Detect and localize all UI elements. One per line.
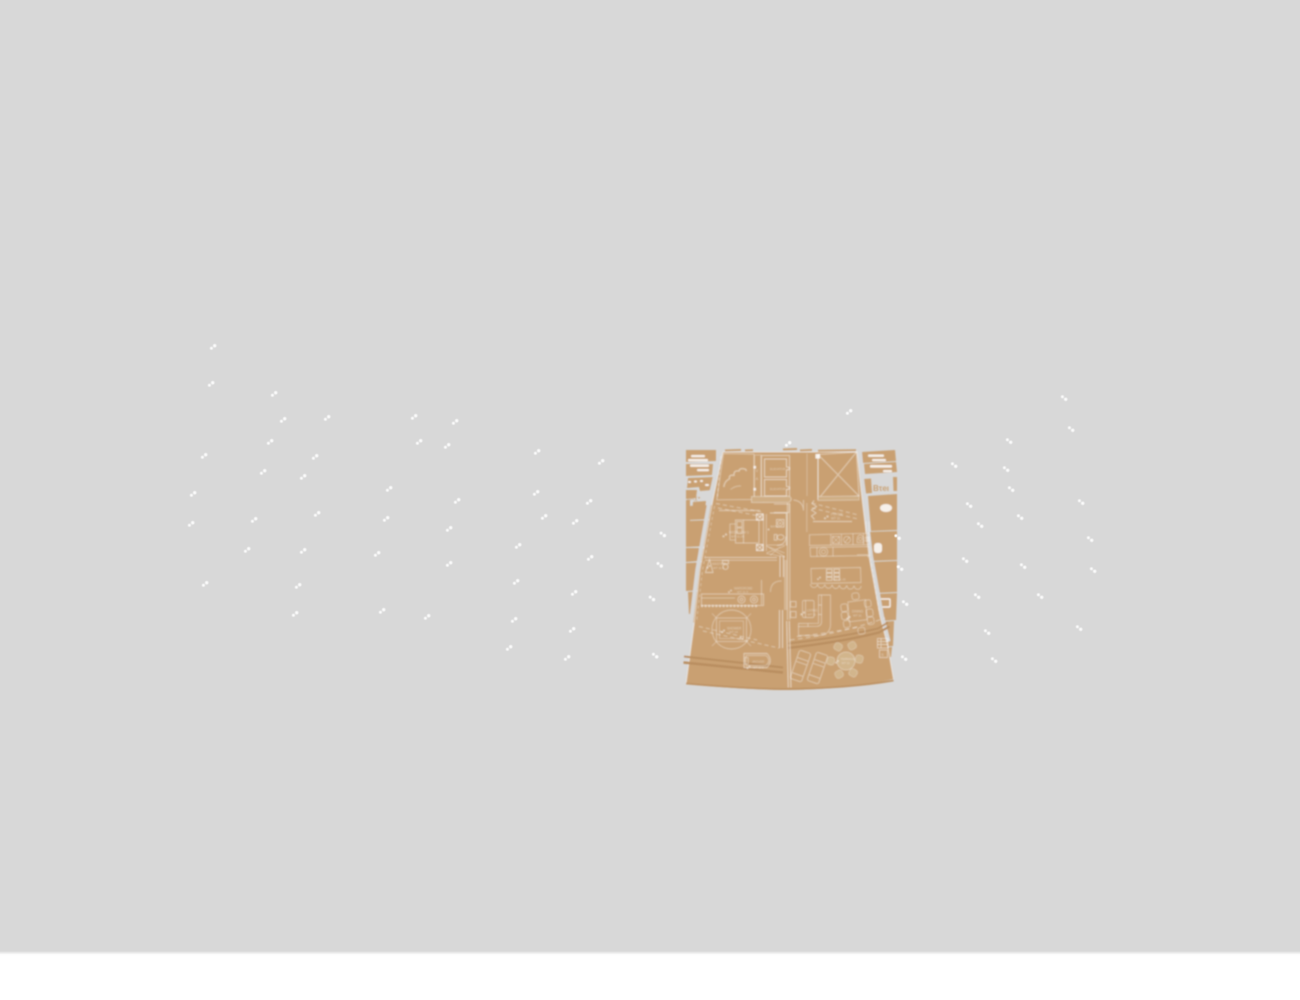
svg-text:WT 11.25: WT 11.25 xyxy=(833,578,846,582)
svg-text:tοτχ‣: tοτχ‣ xyxy=(687,496,701,502)
svg-text:V: V xyxy=(756,468,759,473)
svg-text:WT 11.5: WT 11.5 xyxy=(753,666,764,670)
svg-text:WT 11.25: WT 11.25 xyxy=(731,535,744,539)
svg-text:S: S xyxy=(881,652,884,657)
svg-text:BATH: BATH xyxy=(771,525,779,529)
svg-text:WT 11: WT 11 xyxy=(808,612,817,616)
svg-text:WT 11: WT 11 xyxy=(831,517,840,521)
svg-text:ELEVATOR 2: ELEVATOR 2 xyxy=(770,487,788,491)
svg-text:WT 11.5: WT 11.5 xyxy=(713,566,724,570)
svg-text:JACUZZI: JACUZZI xyxy=(752,660,764,664)
svg-text:WT 11: WT 11 xyxy=(853,613,862,617)
svg-text:ELEVATOR 1: ELEVATOR 1 xyxy=(770,467,788,471)
svg-text:WT 11: WT 11 xyxy=(842,661,851,665)
svg-text:Вτеι: Вτеι xyxy=(873,484,889,493)
svg-text:WT 14: WT 14 xyxy=(729,630,738,634)
svg-text:A: A xyxy=(756,476,759,481)
